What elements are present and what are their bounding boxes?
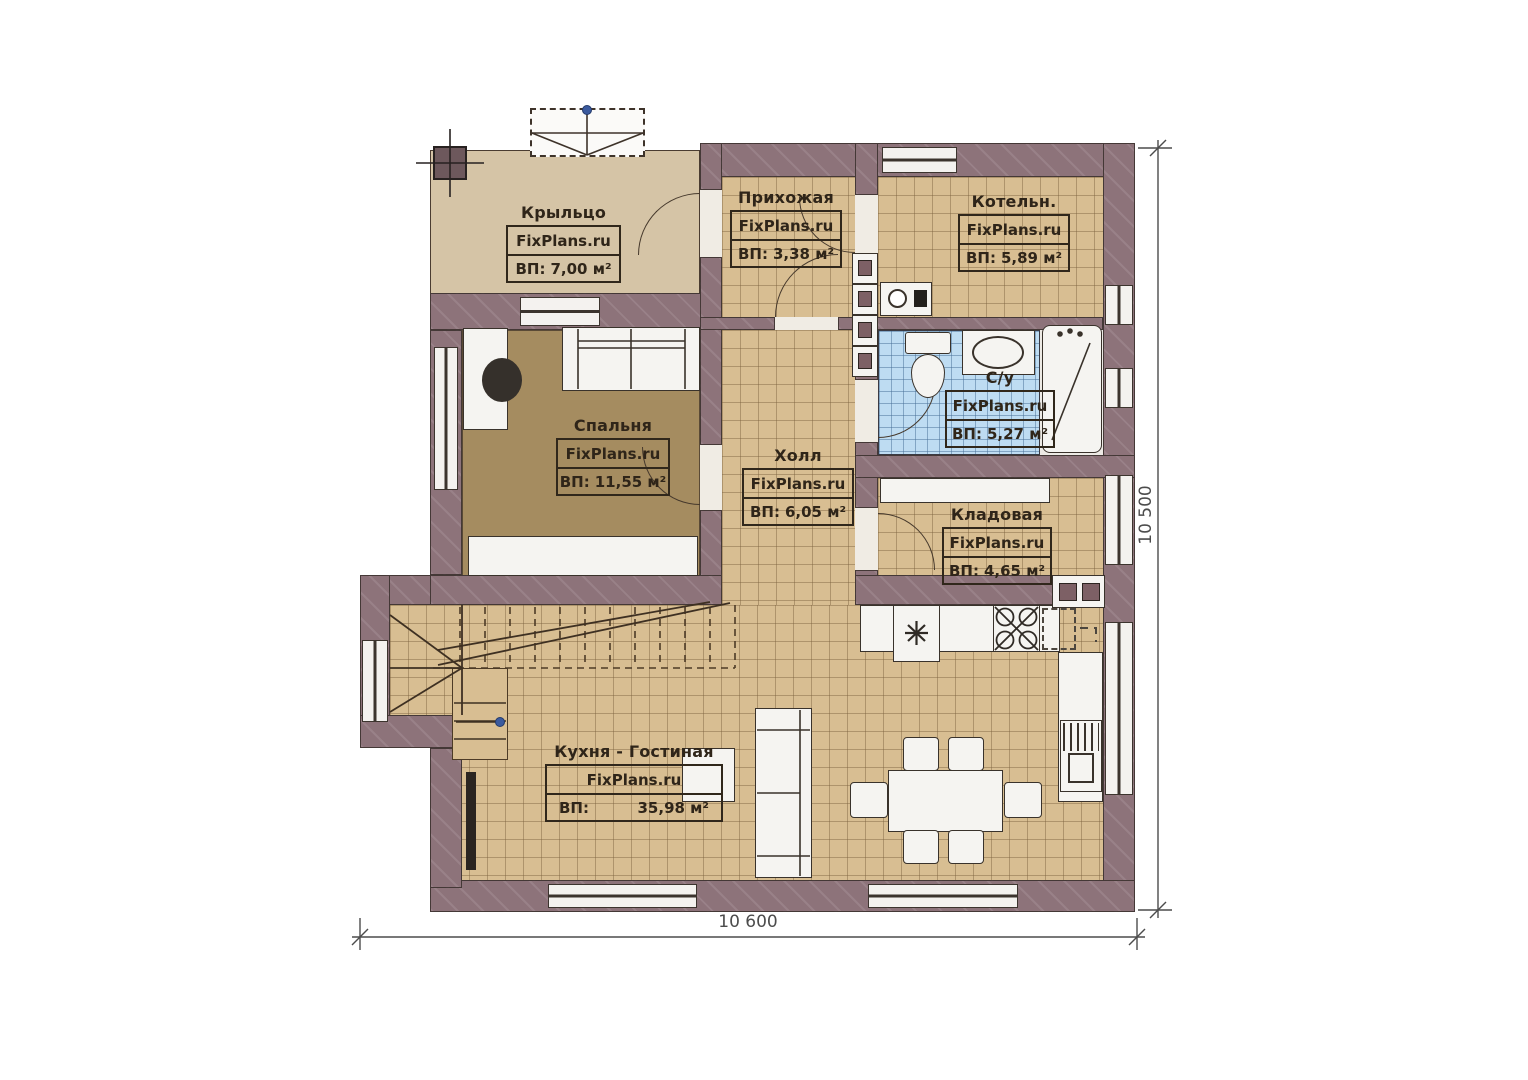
stove (993, 605, 1040, 652)
brand-watermark: FixPlans.ru (508, 227, 619, 254)
dishwasher-outline (1042, 608, 1076, 650)
brand-watermark: FixPlans.ru (547, 766, 721, 793)
room-info-box: FixPlans.ru ВП:5,89 м² (958, 214, 1070, 272)
bath-sink-basin (972, 336, 1024, 369)
sink-cabinet (893, 605, 940, 662)
floor-plan-page: Крыльцо FixPlans.ru ВП:7,00 м² Прихожая … (0, 0, 1528, 1080)
dining-chair (903, 830, 939, 864)
room-label-kitchen: Кухня - Гостиная FixPlans.ru ВП:35,98 м² (545, 742, 723, 822)
room-info-box: FixPlans.ru ВП:6,05 м² (742, 468, 854, 526)
brand-watermark: FixPlans.ru (744, 470, 852, 497)
room-info-box: FixPlans.ru ВП:7,00 м² (506, 225, 621, 283)
window-right-kitchen (1105, 622, 1133, 795)
dining-chair (948, 737, 984, 771)
room-label-bathroom: С/у FixPlans.ru ВП:5,27 м² (945, 368, 1055, 448)
room-label-hall: Холл FixPlans.ru ВП:6,05 м² (742, 446, 854, 526)
area-label: ВП: (952, 425, 982, 443)
toilet-tank (905, 332, 951, 354)
room-area: ВП:6,05 м² (744, 497, 852, 524)
room-info-box: FixPlans.ru ВП:35,98 м² (545, 764, 723, 822)
desk-chair (482, 358, 522, 402)
room-label-porch: Крыльцо FixPlans.ru ВП:7,00 м² (506, 203, 621, 283)
wall-int2-a (855, 143, 878, 195)
room-name: Кладовая (942, 505, 1052, 524)
room-info-box: FixPlans.ru ВП:5,27 м² (945, 390, 1055, 448)
room-label-boiler: Котельн. FixPlans.ru ВП:5,89 м² (958, 192, 1070, 272)
room-name: Крыльцо (506, 203, 621, 222)
room-area: ВП:4,65 м² (944, 556, 1050, 583)
bedroom-door-gap (700, 445, 722, 510)
area-label: ВП: (738, 245, 768, 263)
area-value: 3,38 м² (773, 245, 834, 263)
room-area: ВП:7,00 м² (508, 254, 619, 281)
wall-left-lower (430, 748, 462, 888)
window-bedroom-left (434, 347, 458, 490)
room-area: ВП:5,89 м² (960, 243, 1068, 270)
tv (466, 772, 476, 870)
wall-bottom (430, 880, 1135, 912)
area-value: 35,98 м² (638, 799, 710, 817)
dining-chair (1004, 782, 1042, 818)
washing-machine-panel-icon (914, 290, 927, 307)
brand-watermark: FixPlans.ru (947, 392, 1053, 419)
wall-bedroom-bottom (430, 575, 722, 605)
room-name: Котельн. (958, 192, 1070, 211)
window-bedroom-porch (520, 297, 600, 326)
room-name: Холл (742, 446, 854, 465)
brand-watermark: FixPlans.ru (944, 529, 1050, 556)
wall-int1-a (700, 143, 722, 190)
area-label: ВП: (966, 249, 996, 267)
vent-shaft (852, 315, 878, 346)
window-right-boiler (1105, 285, 1133, 325)
washing-machine-door-icon (888, 289, 907, 308)
entrance-door-gap (700, 190, 722, 257)
room-area: ВП:35,98 м² (547, 793, 721, 820)
window-right-bath (1105, 368, 1133, 408)
area-label: ВП: (560, 473, 590, 491)
porch-column (433, 146, 467, 180)
stair-lower-run (452, 668, 508, 760)
storage-door-gap (855, 508, 878, 570)
brand-watermark: FixPlans.ru (960, 216, 1068, 243)
wall-hallway-bottom-a (700, 317, 775, 330)
brand-watermark: FixPlans.ru (732, 212, 840, 239)
area-label: ВП: (750, 503, 780, 521)
dimension-right-label: 10 500 (1136, 475, 1156, 555)
bathroom-door-gap (855, 380, 878, 442)
area-label: ВП: (559, 799, 589, 817)
dimension-bottom-label: 10 600 (688, 912, 808, 932)
room-area: ВП:11,55 м² (558, 467, 668, 494)
kitchen-vent-box (1052, 575, 1105, 608)
window-bottom-right (868, 884, 1018, 908)
brand-watermark: FixPlans.ru (558, 440, 668, 467)
area-value: 5,27 м² (987, 425, 1048, 443)
window-bay (362, 640, 388, 722)
window-right-storage (1105, 475, 1133, 565)
room-name: С/у (945, 368, 1055, 387)
fridge (1060, 720, 1102, 792)
area-value: 4,65 м² (984, 562, 1045, 580)
room-area: ВП:5,27 м² (947, 419, 1053, 446)
room-label-hallway: Прихожая FixPlans.ru ВП:3,38 м² (730, 188, 842, 268)
room-info-box: FixPlans.ru ВП:4,65 м² (942, 527, 1052, 585)
area-label: ВП: (515, 260, 545, 278)
dining-table (888, 770, 1003, 832)
room-name: Кухня - Гостиная (545, 742, 723, 761)
area-label: ВП: (949, 562, 979, 580)
window-bottom-left (548, 884, 697, 908)
wall-int1-b (700, 257, 722, 445)
hallway-hall-door-gap (775, 317, 838, 330)
room-name: Спальня (556, 416, 670, 435)
room-name: Прихожая (730, 188, 842, 207)
area-value: 5,89 м² (1001, 249, 1062, 267)
bed (562, 327, 700, 391)
wall-int1-c (700, 510, 722, 577)
area-value: 6,05 м² (785, 503, 846, 521)
vent-shaft (852, 284, 878, 315)
boiler-door-gap (855, 195, 878, 253)
dining-chair (850, 782, 888, 818)
vent-shaft (852, 346, 878, 377)
wall-bath-bottom (855, 455, 1135, 478)
dining-chair (948, 830, 984, 864)
sofa (755, 708, 812, 878)
storage-shelf (880, 478, 1050, 503)
room-label-storage: Кладовая FixPlans.ru ВП:4,65 м² (942, 505, 1052, 585)
room-label-bedroom: Спальня FixPlans.ru ВП:11,55 м² (556, 416, 670, 496)
wardrobe (468, 536, 698, 576)
vent-shaft (852, 253, 878, 284)
area-value: 7,00 м² (550, 260, 611, 278)
room-info-box: FixPlans.ru ВП:3,38 м² (730, 210, 842, 268)
room-info-box: FixPlans.ru ВП:11,55 м² (556, 438, 670, 496)
room-area: ВП:3,38 м² (732, 239, 840, 266)
dining-chair (903, 737, 939, 771)
entry-steps (530, 108, 645, 157)
window-boiler-top (882, 147, 957, 173)
area-value: 11,55 м² (595, 473, 667, 491)
